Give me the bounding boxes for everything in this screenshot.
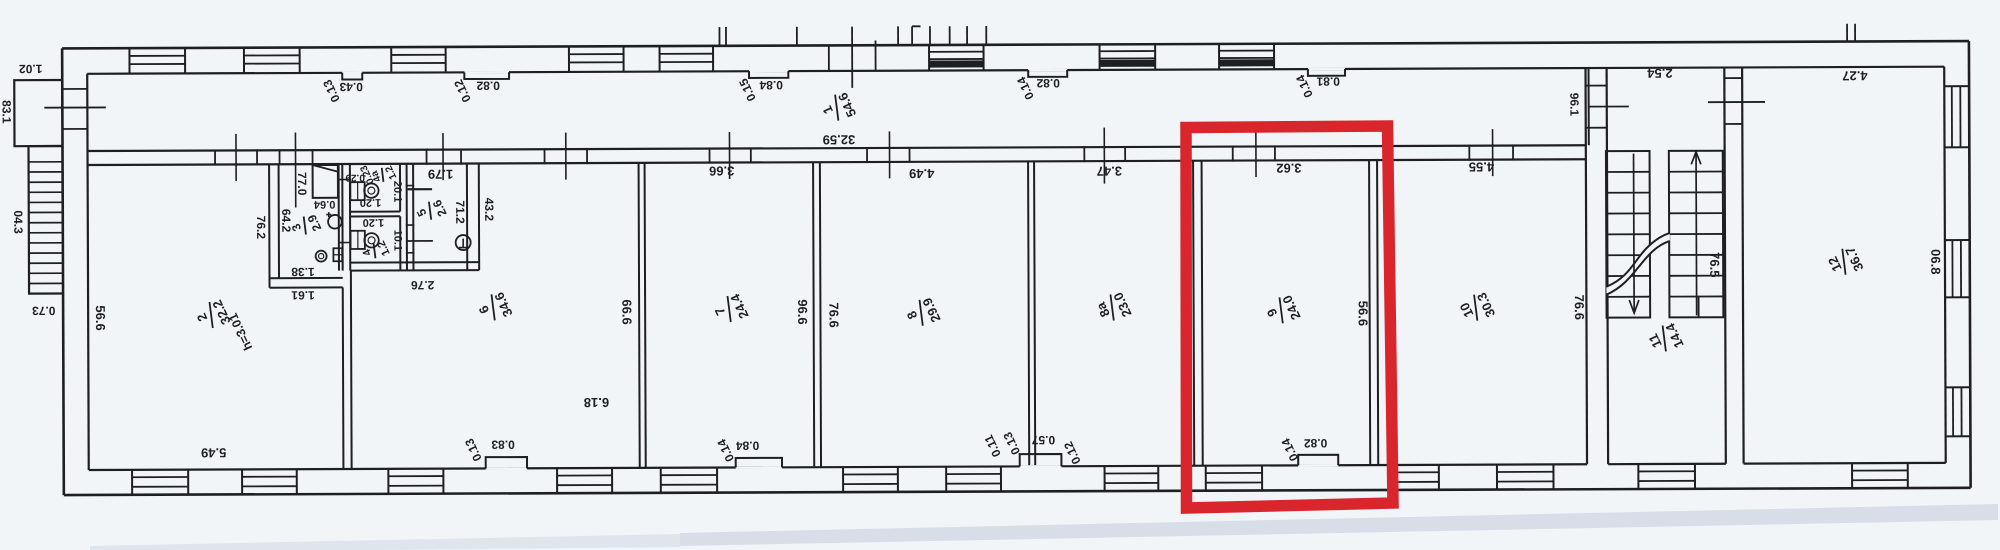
svg-text:66.6: 66.6 bbox=[619, 299, 634, 324]
svg-text:4.49: 4.49 bbox=[909, 166, 934, 181]
svg-text:76.2: 76.2 bbox=[254, 216, 268, 240]
svg-text:4.55: 4.55 bbox=[1469, 159, 1494, 174]
svg-text:0.73: 0.73 bbox=[32, 304, 56, 318]
svg-text:6.18: 6.18 bbox=[584, 395, 609, 410]
svg-text:56.6: 56.6 bbox=[93, 305, 108, 330]
svg-text:1.20: 1.20 bbox=[363, 216, 384, 228]
svg-text:76.6: 76.6 bbox=[826, 302, 841, 327]
svg-text:06.8: 06.8 bbox=[1928, 249, 1943, 274]
svg-text:0.43: 0.43 bbox=[339, 80, 363, 94]
svg-text:76.5: 76.5 bbox=[1707, 252, 1722, 277]
svg-text:2.76: 2.76 bbox=[411, 278, 435, 292]
svg-text:1.61: 1.61 bbox=[291, 288, 315, 302]
svg-text:20.1: 20.1 bbox=[391, 181, 403, 202]
svg-text:0.82: 0.82 bbox=[476, 79, 500, 93]
svg-text:0.82: 0.82 bbox=[1304, 436, 1328, 450]
svg-text:04.3: 04.3 bbox=[11, 210, 25, 234]
svg-text:96.1: 96.1 bbox=[1567, 93, 1581, 117]
svg-text:1.20: 1.20 bbox=[360, 196, 381, 208]
svg-text:3.66: 3.66 bbox=[709, 164, 734, 179]
svg-text:0.64: 0.64 bbox=[313, 198, 335, 210]
svg-text:5.49: 5.49 bbox=[201, 445, 226, 460]
svg-text:0.84: 0.84 bbox=[759, 78, 783, 92]
svg-text:56.6: 56.6 bbox=[1356, 301, 1371, 326]
svg-text:3.47: 3.47 bbox=[1097, 164, 1122, 179]
svg-text:0.84: 0.84 bbox=[736, 439, 760, 453]
svg-text:1.02: 1.02 bbox=[19, 62, 43, 76]
svg-text:0.29: 0.29 bbox=[345, 172, 365, 183]
svg-text:0.57: 0.57 bbox=[1031, 433, 1055, 447]
svg-text:3.62: 3.62 bbox=[1276, 161, 1301, 176]
svg-text:83.1: 83.1 bbox=[0, 100, 14, 124]
svg-text:96.6: 96.6 bbox=[795, 299, 810, 324]
svg-text:64.2: 64.2 bbox=[279, 209, 293, 233]
svg-text:0.82: 0.82 bbox=[1036, 76, 1060, 90]
svg-text:32.59: 32.59 bbox=[823, 132, 856, 147]
svg-text:0.81: 0.81 bbox=[1316, 74, 1340, 88]
svg-text:76.6: 76.6 bbox=[1572, 295, 1587, 320]
svg-text:1.79: 1.79 bbox=[428, 167, 453, 182]
svg-text:71.2: 71.2 bbox=[453, 200, 467, 224]
svg-text:1.38: 1.38 bbox=[291, 265, 315, 279]
svg-text:0.83: 0.83 bbox=[491, 438, 515, 452]
svg-text:10.1: 10.1 bbox=[391, 230, 403, 251]
svg-text:43.2: 43.2 bbox=[482, 198, 496, 222]
svg-text:4.27: 4.27 bbox=[1842, 68, 1867, 83]
svg-text:2.54: 2.54 bbox=[1646, 66, 1672, 81]
svg-text:77.0: 77.0 bbox=[295, 172, 309, 196]
